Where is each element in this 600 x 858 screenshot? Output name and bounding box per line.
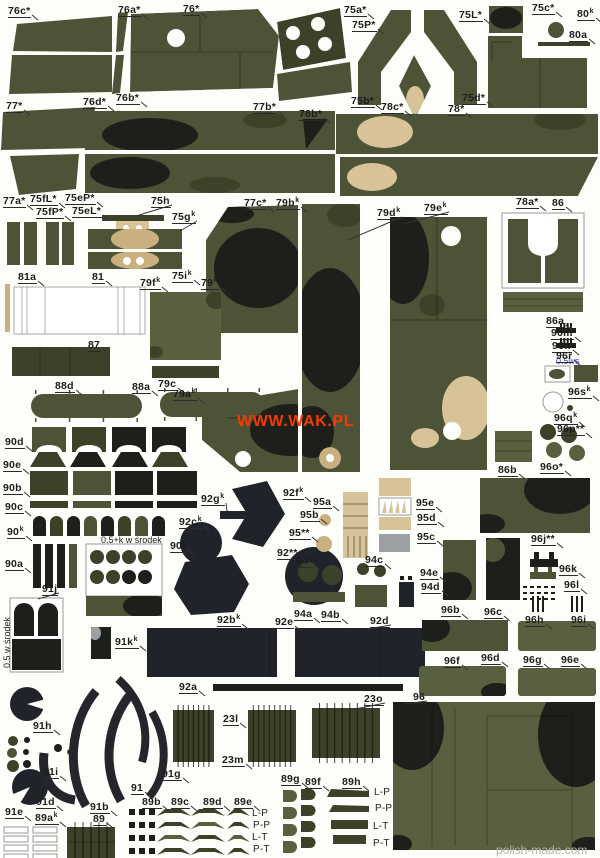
part-label-96d: 96d [481, 652, 501, 665]
part-label-90c: 90c [5, 501, 24, 514]
label-superscript: k [587, 386, 591, 393]
part-label-79d: 79dk [377, 207, 401, 220]
part-89a-3 [4, 836, 28, 842]
part-label-91k: 91kk [115, 636, 139, 649]
part-23l-a [173, 705, 214, 767]
part-label-91j: 91j [42, 583, 58, 596]
part-label-L-T: L-T [252, 832, 269, 844]
part-label-77*: 77* [6, 100, 23, 113]
part-label-90b: 90b [3, 482, 23, 495]
part-89c-2 [157, 822, 191, 829]
part-label-91i: 91i [43, 766, 59, 779]
part-77 [1, 107, 95, 150]
part-75g [88, 228, 182, 250]
part-label-92e: 92e [275, 616, 294, 629]
part-label-P-T: P-T [253, 844, 271, 856]
part-78 [336, 110, 598, 154]
part-label-95c: 95c [417, 531, 436, 544]
part-90k-3 [67, 516, 80, 536]
part-89c-3 [157, 835, 191, 842]
part-89a-7 [4, 854, 28, 858]
part-90c-3 [115, 501, 153, 508]
label-superscript: k [54, 812, 58, 819]
part-89a-6 [33, 845, 57, 851]
part-label-94b: 94b [321, 609, 341, 622]
part-94b [355, 585, 387, 607]
part-75fL [7, 222, 20, 265]
part-label-95**: 95** [289, 527, 311, 540]
part-90f-c2 [106, 550, 120, 564]
part-label-96: 96 [413, 691, 426, 704]
part-label-76c*: 76c* [8, 5, 31, 18]
part-label-89b: 89b [142, 796, 162, 809]
part-label-89f: 89f [305, 776, 322, 789]
part-label-L-P: L-P [252, 808, 269, 820]
part-label-96e: 96e [561, 654, 580, 667]
label-superscript: k [156, 277, 160, 284]
part-90f-c8 [138, 570, 152, 584]
part-90a-3 [57, 544, 65, 588]
part-95e [379, 498, 411, 515]
part-label-90f: 90f [170, 540, 187, 553]
part-78a [340, 157, 598, 196]
part-91h [10, 687, 46, 721]
part-89a-5 [4, 845, 28, 851]
part-label-95b: 95b [300, 509, 320, 522]
part-label-91g: 91g [162, 768, 182, 781]
part-label-89a: 89ak [35, 812, 59, 825]
part-label-92f: 92fk [283, 487, 304, 500]
label-superscript: k [573, 412, 577, 419]
part-90k-1 [33, 516, 46, 536]
part-75a [277, 8, 346, 70]
part-label-86b: 86b [498, 464, 518, 477]
part-label-P-P: P-P [375, 803, 393, 815]
part-89e-1 [227, 809, 250, 816]
part-90f-c5 [90, 570, 104, 584]
part-96j [469, 466, 596, 534]
part-77c [85, 154, 335, 193]
part-91b-arc [73, 691, 96, 806]
part-label-95d: 95d [417, 512, 437, 525]
part-label-96i: 96i [571, 614, 587, 627]
part-96 [380, 683, 600, 855]
part-88d [31, 390, 142, 422]
part-96k [530, 552, 558, 567]
part-label-P-P: P-P [253, 820, 271, 832]
part-89f-2 [301, 805, 316, 816]
part-90c-2 [73, 501, 111, 508]
part-90b-4 [157, 471, 197, 495]
part-label-94*: 94* [296, 555, 313, 568]
part-label-81: 81 [92, 271, 105, 284]
part-96r-oval [549, 369, 565, 379]
part-label-L-P: L-P [374, 787, 391, 799]
part-label-96g: 96g [523, 654, 543, 667]
label-superscript: k [443, 202, 447, 209]
part-label-89g: 89g [281, 773, 301, 786]
part-86a [503, 292, 583, 312]
part-92a [213, 684, 403, 691]
part-90b-3 [115, 471, 153, 495]
part-89h-1 [327, 789, 369, 797]
part-label-75a*: 75a* [344, 4, 367, 17]
part-label-79e: 79ek [424, 202, 448, 215]
part-92e [147, 628, 277, 677]
part-91i-5 [7, 760, 19, 772]
part-label-94d: 94d [421, 581, 441, 594]
part-77b [85, 111, 335, 152]
watermark-text: polish-made.com [496, 843, 587, 857]
part-77a [10, 154, 79, 195]
part-79e [377, 212, 490, 470]
label-superscript: k [134, 636, 138, 643]
part-91k [89, 626, 111, 659]
part-91i-4 [23, 749, 29, 755]
part-label-92a: 92a [179, 681, 198, 694]
label-superscript: k [396, 207, 400, 214]
part-label-94c: 94c [365, 554, 384, 567]
assembly-note-vertical: 0.5 w środek [2, 617, 12, 668]
part-label-90e: 90e [3, 459, 22, 472]
part-label-76*: 76* [183, 3, 200, 16]
part-label-86: 86 [552, 197, 565, 210]
part-89h-4 [333, 835, 366, 844]
part-96g [518, 668, 596, 696]
part-89g-3 [283, 824, 297, 836]
part-86b [495, 431, 532, 462]
part-95a [343, 492, 368, 558]
part-90c-4 [157, 501, 197, 508]
part-90k-5 [101, 516, 114, 536]
part-76b [112, 55, 124, 94]
part-94s-2 [322, 565, 342, 585]
part-label-96h: 96h [525, 614, 545, 627]
label-superscript: k [236, 614, 240, 621]
part-label-75eP*: 75eP* [65, 192, 96, 205]
part-label-75g: 75gk [172, 211, 196, 224]
part-label-79a: 79ak [173, 388, 197, 401]
label-superscript: k [198, 516, 202, 523]
part-label-92g: 92gk [201, 493, 225, 506]
part-23l-b [248, 705, 296, 767]
part-label-75c*: 75c* [532, 2, 555, 15]
part-92d [295, 628, 425, 677]
part-label-75fL*: 75fL* [30, 193, 58, 206]
part-label-92c: 92ck [179, 516, 203, 529]
part-90k-8 [152, 516, 165, 536]
part-95b [319, 514, 331, 526]
part-90a-1 [33, 544, 41, 588]
part-89g-2 [283, 807, 297, 819]
part-90f-c6 [106, 570, 120, 584]
part-96o-1 [546, 442, 562, 458]
part-81 [14, 287, 145, 334]
part-96l [530, 567, 556, 579]
part-95-top [379, 478, 411, 496]
part-80 [548, 22, 564, 38]
part-89h-2 [329, 805, 369, 812]
part-75i [88, 251, 182, 269]
part-label-75P*: 75P* [352, 19, 377, 32]
part-label-78b*: 78b* [299, 108, 323, 121]
part-label-91e: 91e [5, 806, 24, 819]
part-96h [532, 596, 544, 612]
part-90f-c7 [122, 570, 136, 584]
part-75fP [24, 222, 37, 265]
part-label-79f: 79fk [140, 277, 161, 290]
part-label-92d: 92d [370, 615, 390, 628]
label-superscript: k [20, 526, 24, 533]
part-89c-4 [157, 848, 191, 855]
part-label-81a: 81a [18, 271, 37, 284]
part-label-23l: 23l [223, 713, 239, 726]
part-89d-4 [191, 848, 225, 855]
publisher-url-text: WWW.WAK.PL [237, 413, 354, 431]
part-75L [424, 10, 477, 105]
part-89g-1 [283, 790, 297, 802]
part-91j-a1 [14, 603, 34, 636]
part-79f [147, 291, 226, 360]
part-label-96r: 96r [556, 350, 573, 363]
part-79c [152, 366, 219, 378]
part-91g-arc [149, 712, 164, 797]
label-superscript: k [299, 487, 303, 494]
part-89f-3 [301, 821, 316, 832]
part-95c [379, 534, 410, 552]
part-label-96p**: 96p** [557, 423, 585, 436]
assembly-note-plus-k: 0.5+k w środek [101, 535, 162, 545]
part-89h-3 [331, 820, 368, 829]
part-label-79: 79k [201, 277, 219, 290]
part-91i-6 [23, 760, 31, 768]
part-76a [116, 12, 128, 52]
part-label-96j**: 96j** [531, 533, 556, 546]
part-23o [312, 703, 380, 763]
part-label-91: 91 [131, 782, 144, 795]
part-94a [293, 592, 345, 602]
part-label-75b*: 75b* [351, 95, 375, 108]
part-76 [130, 9, 279, 92]
part-label-95e: 95e [416, 497, 435, 510]
part-96f [419, 666, 513, 701]
label-superscript: k [191, 211, 195, 218]
label-superscript: k [220, 493, 224, 500]
part-75h-bar [102, 215, 164, 221]
part-92b [174, 555, 249, 615]
part-label-23m: 23m [222, 754, 245, 767]
part-81a [5, 284, 10, 332]
part-label-75L*: 75L* [459, 9, 483, 22]
part-label-96k: 96k [559, 563, 578, 576]
part-label-89e: 89e [234, 796, 253, 809]
part-90f-c4 [138, 550, 152, 564]
part-label-79b: 79bk [276, 197, 300, 210]
part-label-80: 80k [577, 8, 595, 21]
part-96o-2 [569, 445, 585, 461]
part-89b [129, 809, 155, 854]
part-label-89c: 89c [171, 796, 190, 809]
part-label-76a*: 76a* [118, 4, 141, 17]
part-96s-dot [567, 405, 573, 411]
part-label-89d: 89d [203, 796, 223, 809]
part-75eP [46, 222, 59, 265]
part-label-23o: 23o [364, 693, 384, 706]
part-94d [399, 582, 414, 607]
part-label-96m: 96m [551, 327, 574, 340]
part-90f-base [86, 594, 167, 618]
part-label-76d*: 76d* [83, 96, 107, 109]
part-label-L-T: L-T [373, 821, 390, 833]
part-90c-1 [30, 501, 68, 508]
part-91i-1 [8, 736, 18, 746]
part-label-75i: 75ik [172, 270, 193, 283]
part-75eL [62, 222, 74, 265]
part-90a-4 [69, 544, 77, 588]
part-label-78a*: 78a* [516, 196, 539, 209]
part-75d [488, 36, 587, 108]
label-superscript: k [192, 388, 196, 395]
part-label-96s: 96sk [568, 386, 592, 399]
part-label-80a: 80a [569, 29, 588, 42]
model-parts-sheet: WWW.WAK.PL 0.5+k w środek 0.5ws 0.5 w śr… [0, 0, 600, 858]
part-label-90a: 90a [5, 558, 24, 571]
part-96d [414, 614, 508, 651]
part-96c [481, 538, 520, 600]
part-75c [489, 6, 523, 33]
part-label-91h: 91h [33, 720, 53, 733]
part-91i-7 [54, 744, 62, 752]
part-label-95a: 95a [313, 496, 332, 509]
part-90f-c1 [90, 550, 104, 564]
part-96s-ring [543, 392, 563, 412]
part-89d-3 [191, 835, 225, 842]
part-label-89h: 89h [342, 776, 362, 789]
part-89c-1 [157, 809, 191, 816]
part-label-96o*: 96o* [540, 461, 564, 474]
part-91i-3 [7, 748, 17, 758]
part-label-78c*: 78c* [381, 101, 404, 114]
part-label-89: 89 [93, 813, 106, 826]
part-label-75h: 75h [151, 195, 171, 208]
part-89 [67, 822, 115, 858]
part-96i [571, 596, 583, 612]
part-89f-1 [301, 789, 316, 800]
part-90k-7 [135, 516, 148, 536]
part-label-75eL*: 75eL* [72, 205, 102, 218]
part-89e-3 [227, 835, 250, 842]
part-90k-4 [84, 516, 97, 536]
part-95xx [316, 536, 332, 552]
part-label-94e: 94e [420, 567, 439, 580]
part-90f-c3 [122, 550, 136, 564]
part-label-77c*: 77c* [244, 197, 267, 210]
part-label-91d: 91d [36, 796, 56, 809]
part-91j-r [12, 639, 61, 670]
part-label-94a: 94a [294, 608, 313, 621]
part-91j-a2 [38, 603, 58, 636]
part-label-76b*: 76b* [116, 92, 140, 105]
part-80a [538, 42, 590, 46]
part-ring [319, 447, 341, 469]
part-91i-2 [24, 737, 30, 743]
part-label-90: 90k [7, 526, 25, 539]
part-label-P-T: P-T [373, 838, 391, 850]
part-label-88a: 88a [132, 381, 151, 394]
part-90b-2 [73, 471, 111, 495]
part-89e-4 [227, 848, 250, 855]
label-superscript: k [214, 277, 218, 284]
part-76c [13, 16, 112, 52]
part-label-75fP*: 75fP* [36, 206, 64, 219]
part-label-75d*: 75d* [462, 92, 486, 105]
part-96r-plate [574, 365, 598, 382]
part-90a-2 [45, 544, 53, 588]
part-label-77a*: 77a* [3, 195, 26, 208]
part-89e-2 [227, 822, 250, 829]
part-label-92b: 92bk [217, 614, 241, 627]
part-96p-1 [540, 424, 556, 440]
part-89a-2 [33, 827, 57, 833]
part-89a-1 [4, 827, 28, 833]
part-90k-6 [118, 516, 131, 536]
part-label-96l: 96l [564, 579, 580, 592]
part-label-96f: 96f [444, 655, 461, 668]
part-91-arc2 [118, 679, 145, 762]
label-superscript: k [295, 197, 299, 204]
part-95d [379, 517, 411, 530]
part-89g-4 [283, 841, 297, 853]
part-label-90d: 90d [5, 436, 25, 449]
part-label-77b*: 77b* [253, 101, 277, 114]
part-89f-4 [301, 837, 316, 848]
part-76d [9, 55, 112, 94]
part-label-96c: 96c [484, 606, 503, 619]
label-superscript: k [590, 8, 594, 15]
part-label-88d: 88d [55, 380, 75, 393]
part-89d-2 [191, 822, 225, 829]
part-79d [290, 203, 366, 472]
part-91-arc [109, 696, 129, 801]
part-label-87: 87 [88, 339, 101, 352]
part-90k-2 [50, 516, 63, 536]
part-89a-4 [33, 836, 57, 842]
part-89a-8 [33, 854, 57, 858]
part-label-96b: 96b [441, 604, 461, 617]
part-90b-1 [30, 471, 68, 495]
part-94e [400, 576, 412, 580]
label-superscript: k [188, 270, 192, 277]
